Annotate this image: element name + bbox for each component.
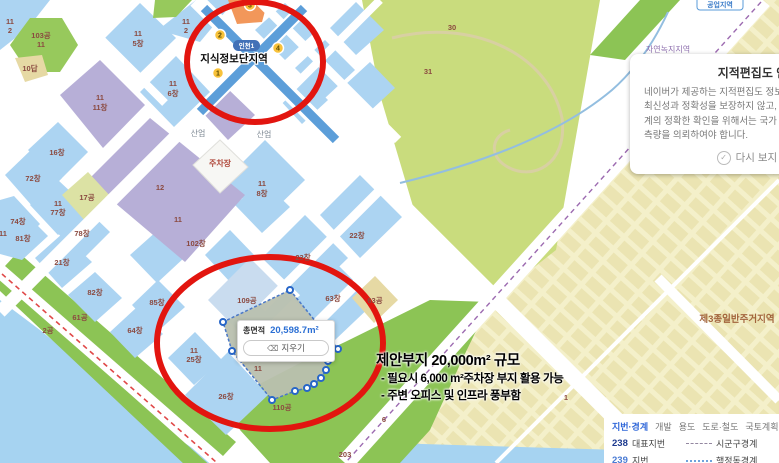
- map-label: 1: [564, 393, 568, 402]
- legend-tab[interactable]: 용도: [679, 420, 696, 433]
- legend-parcel-label: 지번: [632, 454, 684, 463]
- map-label: 11: [0, 229, 7, 238]
- legend-row: 239지번행정동경계: [612, 454, 771, 463]
- legend-line-label: 행정동경계: [716, 454, 757, 463]
- map-label: 203: [339, 450, 352, 459]
- map-label: 22창: [349, 230, 364, 240]
- map-label: 21창: [54, 257, 69, 267]
- legend-rows: 238대표지번시군구경계239지번행정동경계: [612, 437, 771, 463]
- map-label: 11: [54, 199, 62, 208]
- measure-vertex-dot[interactable]: [292, 388, 298, 394]
- map-label: 25창: [186, 354, 201, 364]
- measure-vertex-dot[interactable]: [220, 319, 226, 325]
- zone-badge-label: 공업지역: [707, 0, 733, 9]
- legend-parcel-label: 대표지번: [632, 437, 684, 450]
- station-exit-number: 1: [216, 71, 220, 78]
- legend-line-sample: [686, 443, 712, 444]
- map-label: 11: [254, 364, 262, 373]
- map-label: 11: [6, 17, 14, 26]
- notice-title: 지적편집도 안내: [644, 64, 779, 81]
- check-circle-icon: ✓: [717, 151, 731, 165]
- map-label: 2공: [42, 326, 53, 335]
- map-label: 2: [8, 26, 12, 35]
- legend-tab[interactable]: 지번·경계: [612, 420, 648, 433]
- map-label: 63공: [367, 296, 382, 305]
- measure-vertex-dot[interactable]: [335, 346, 341, 352]
- map-label: 12: [156, 183, 164, 192]
- map-label: 산업: [257, 129, 272, 139]
- legend-tabs: 지번·경계개발용도도로·철도국토계획: [612, 420, 771, 433]
- map-label: 산업: [191, 128, 206, 138]
- map-screen: 인천1 지식정보단지역 3241 공업지역 112103공1110답115창11…: [0, 0, 779, 463]
- map-label: 63창: [325, 293, 340, 303]
- legend-row: 238대표지번시군구경계: [612, 437, 771, 450]
- proposal-title: 제안부지 20,000m² 규모: [376, 352, 563, 371]
- legend-tab[interactable]: 도로·철도: [702, 420, 738, 433]
- measure-vertex-dot[interactable]: [311, 381, 317, 387]
- map-label: 자연녹지지역: [646, 44, 690, 54]
- map-label: 23창: [295, 252, 310, 262]
- map-label: 103공: [31, 31, 51, 40]
- total-area-label: 총면적: [243, 325, 265, 336]
- map-label: 8창: [256, 188, 267, 198]
- map-label: 2: [184, 26, 188, 35]
- cadastral-notice-panel: 지적편집도 안내 네이버가 제공하는 지적편집도 정보는 단순 참고용으로 그 …: [630, 54, 779, 174]
- map-label: 11: [96, 93, 104, 102]
- legend-parcel-number: 239: [612, 455, 632, 463]
- zone-badge: 공업지역: [697, 0, 743, 10]
- legend-panel: 지번·경계개발용도도로·철도국토계획 238대표지번시군구경계239지번행정동경…: [604, 414, 779, 463]
- dont-show-again-button[interactable]: ✓ 다시 보지 않기: [644, 150, 779, 165]
- map-label: 64창: [127, 325, 142, 335]
- map-label: 26창: [218, 391, 233, 401]
- map-label: 72창: [25, 173, 40, 183]
- clear-measure-label: 지우기: [281, 342, 304, 354]
- map-label: 6: [382, 415, 386, 424]
- measure-vertex-dot[interactable]: [287, 287, 293, 293]
- station-name: 지식정보단지역: [200, 52, 268, 65]
- station-exit-number: 2: [218, 33, 222, 40]
- legend-tab[interactable]: 개발: [655, 420, 672, 433]
- dont-show-again-label: 다시 보지 않기: [736, 150, 779, 165]
- map-label: 5창: [132, 38, 143, 48]
- map-label: 11: [169, 79, 177, 88]
- map-label: 85창: [149, 297, 164, 307]
- legend-line-label: 시군구경계: [716, 437, 757, 450]
- map-label: 61공: [72, 313, 87, 322]
- map-label: 10답: [22, 63, 37, 73]
- map-label: 30: [448, 23, 456, 32]
- notice-body: 네이버가 제공하는 지적편집도 정보는 단순 참고용으로 그 최신성과 정확성을…: [644, 86, 779, 143]
- proposal-line-1: - 필요시 6,000 m²주차장 부지 활용 가능: [376, 371, 563, 388]
- map-label: 17공: [79, 193, 94, 202]
- station-exit-number: 4: [276, 46, 280, 53]
- map-label: 11: [190, 346, 198, 355]
- map-label: 11: [37, 40, 45, 49]
- clear-measure-button[interactable]: ⌫ 지우기: [243, 340, 329, 356]
- map-label: 주차장: [209, 158, 232, 168]
- map-label: 109공: [237, 296, 257, 305]
- legend-parcel-number: 238: [612, 438, 632, 449]
- map-label: 81창: [15, 233, 30, 243]
- measure-vertex-dot[interactable]: [304, 385, 310, 391]
- map-label: 11: [134, 29, 142, 38]
- line-badge-label: 인천1: [239, 41, 255, 50]
- legend-line-sample: [686, 460, 712, 462]
- eraser-icon: ⌫: [267, 344, 278, 353]
- map-label: 11: [182, 17, 190, 26]
- proposal-line-2: - 주변 오피스 및 인프라 풍부함: [376, 388, 563, 405]
- total-area-value: 20,598.7m²: [270, 325, 319, 336]
- measure-tooltip: 총면적 20,598.7m² ⌫ 지우기: [237, 320, 335, 362]
- legend-tab[interactable]: 국토계획: [745, 420, 778, 433]
- map-label: 74창: [10, 216, 25, 226]
- map-label: 102창: [186, 238, 206, 248]
- map-label: 78창: [74, 228, 89, 238]
- measure-vertex-dot[interactable]: [323, 367, 329, 373]
- map-label: 31: [424, 67, 432, 76]
- proposal-annotation: 제안부지 20,000m² 규모 - 필요시 6,000 m²주차장 부지 활용…: [376, 352, 563, 405]
- map-label: 110공: [273, 403, 292, 412]
- map-label: 77창: [50, 207, 65, 217]
- measure-vertex-dot[interactable]: [318, 375, 324, 381]
- map-label: 제3종일반주거지역: [699, 313, 774, 325]
- map-label: 11: [258, 179, 266, 188]
- map-label: 16창: [49, 147, 64, 157]
- map-label: 82창: [87, 287, 102, 297]
- map-label: 11: [174, 215, 182, 224]
- map-label: 11창: [93, 102, 108, 112]
- map-label: 6창: [167, 88, 178, 98]
- measure-vertex-dot[interactable]: [229, 348, 235, 354]
